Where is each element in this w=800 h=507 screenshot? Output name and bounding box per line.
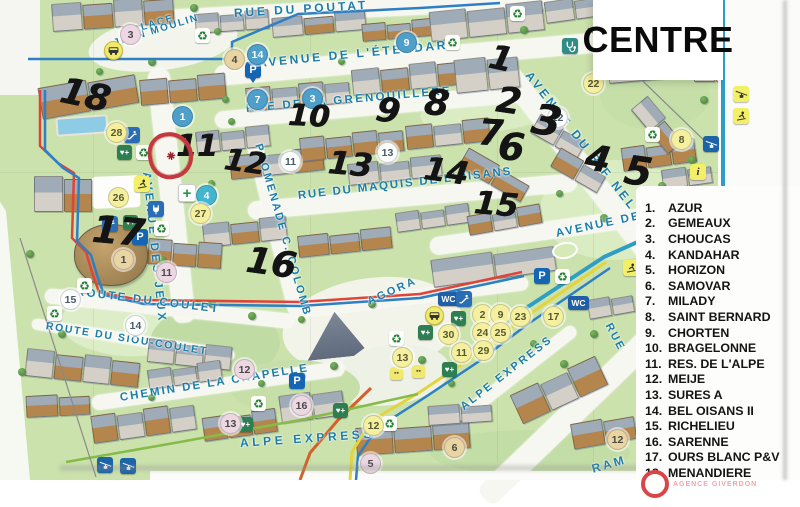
map-title-box: CENTRE	[593, 0, 723, 80]
legend-item-number: 6.	[645, 279, 668, 293]
legend-item-name: MEIJE	[668, 372, 705, 386]
scanned-resort-map-page: { "title": "CENTRE", "legend": { "items"…	[0, 0, 800, 480]
legend-item-number: 1.	[645, 201, 668, 215]
handwritten-number-9: 9	[373, 92, 402, 130]
legend-item: 6.SAMOVAR	[645, 278, 780, 294]
legend-item-number: 12.	[645, 372, 668, 386]
scan-shadow-bottom	[60, 466, 718, 470]
legend-item: 4.KANDAHAR	[645, 247, 780, 263]
highlight-center-mark	[162, 147, 178, 163]
legend-item: 10.BRAGELONNE	[645, 340, 780, 356]
legend-item-name: HORIZON	[668, 263, 725, 277]
legend-item: 8.SAINT BERNARD	[645, 309, 780, 325]
handwritten-number-8: 8	[422, 85, 450, 123]
handwritten-number-18: 18	[57, 73, 113, 119]
legend-item-number: 17.	[645, 450, 668, 464]
legend-item-number: 5.	[645, 263, 668, 277]
handwritten-number-17: 17	[90, 210, 146, 252]
legend-item-number: 11.	[645, 357, 668, 371]
handwritten-number-4: 4	[582, 140, 613, 180]
legend-item-name: SAINT BERNARD	[668, 310, 771, 324]
legend-item-number: 13.	[645, 388, 668, 402]
legend-item-name: RES. DE L'ALPE	[668, 357, 765, 371]
legend-item: 2.GEMEAUX	[645, 216, 780, 232]
legend-list: 1.AZUR2.GEMEAUX3.CHOUCAS4.KANDAHAR5.HORI…	[645, 200, 780, 481]
legend-item: 3.CHOUCAS	[645, 231, 780, 247]
legend-panel: 1.AZUR2.GEMEAUX3.CHOUCAS4.KANDAHAR5.HORI…	[636, 186, 800, 480]
legend-item-number: 7.	[645, 294, 668, 308]
legend-item: 16.SARENNE	[645, 434, 780, 450]
legend-item: 11.RES. DE L'ALPE	[645, 356, 780, 372]
legend-item-name: KANDAHAR	[668, 248, 740, 262]
legend-item-name: GEMEAUX	[668, 216, 731, 230]
handwritten-number-13: 13	[327, 146, 374, 182]
legend-item: 15.RICHELIEU	[645, 418, 780, 434]
scan-page-edge	[783, 0, 787, 480]
handwritten-number-12: 12	[222, 145, 268, 181]
legend-item-name: AZUR	[668, 201, 702, 215]
legend-item: 13.SURES A	[645, 387, 780, 403]
legend-item-name: MILADY	[668, 294, 716, 308]
legend-item: 7.MILADY	[645, 294, 780, 310]
legend-item: 14.BEL OISANS II	[645, 403, 780, 419]
legend-item-name: RICHELIEU	[668, 419, 735, 433]
legend-item-name: BRAGELONNE	[668, 341, 756, 355]
handwritten-number-3: 3	[529, 98, 565, 144]
legend-item-name: SARENNE	[668, 435, 729, 449]
partner-logo-text: AGENCE GIVERDON	[673, 481, 757, 488]
handwritten-number-10: 10	[287, 101, 330, 133]
partner-logo: AGENCE GIVERDON	[641, 470, 757, 498]
legend-item-number: 8.	[645, 310, 668, 324]
legend-item-name: CHORTEN	[668, 326, 729, 340]
legend-item: 12.MEIJE	[645, 372, 780, 388]
legend-item-number: 2.	[645, 216, 668, 230]
handwritten-number-15: 15	[473, 186, 520, 222]
legend-item-name: SURES A	[668, 388, 723, 402]
partner-logo-icon	[641, 470, 669, 498]
legend-item: 9.CHORTEN	[645, 325, 780, 341]
legend-item: 17.OURS BLANC P&V	[645, 450, 780, 466]
legend-item-number: 10.	[645, 341, 668, 355]
legend-item-name: CHOUCAS	[668, 232, 731, 246]
legend-item-number: 9.	[645, 326, 668, 340]
legend-item-number: 4.	[645, 248, 668, 262]
legend-item-name: SAMOVAR	[668, 279, 730, 293]
legend-item-name: OURS BLANC P&V	[668, 450, 780, 464]
legend-item-number: 15.	[645, 419, 668, 433]
page-title: CENTRE	[583, 19, 734, 61]
legend-item: 5.HORIZON	[645, 262, 780, 278]
handwritten-number-14: 14	[422, 152, 471, 190]
handwritten-number-7: 7	[477, 115, 504, 152]
legend-item-number: 3.	[645, 232, 668, 246]
legend-item: 1.AZUR	[645, 200, 780, 216]
legend-item-number: 16.	[645, 435, 668, 449]
handwritten-number-1: 1	[486, 40, 516, 78]
handwritten-number-16: 16	[244, 243, 299, 286]
legend-item-number: 14.	[645, 404, 668, 418]
legend-item-name: BEL OISANS II	[668, 404, 754, 418]
